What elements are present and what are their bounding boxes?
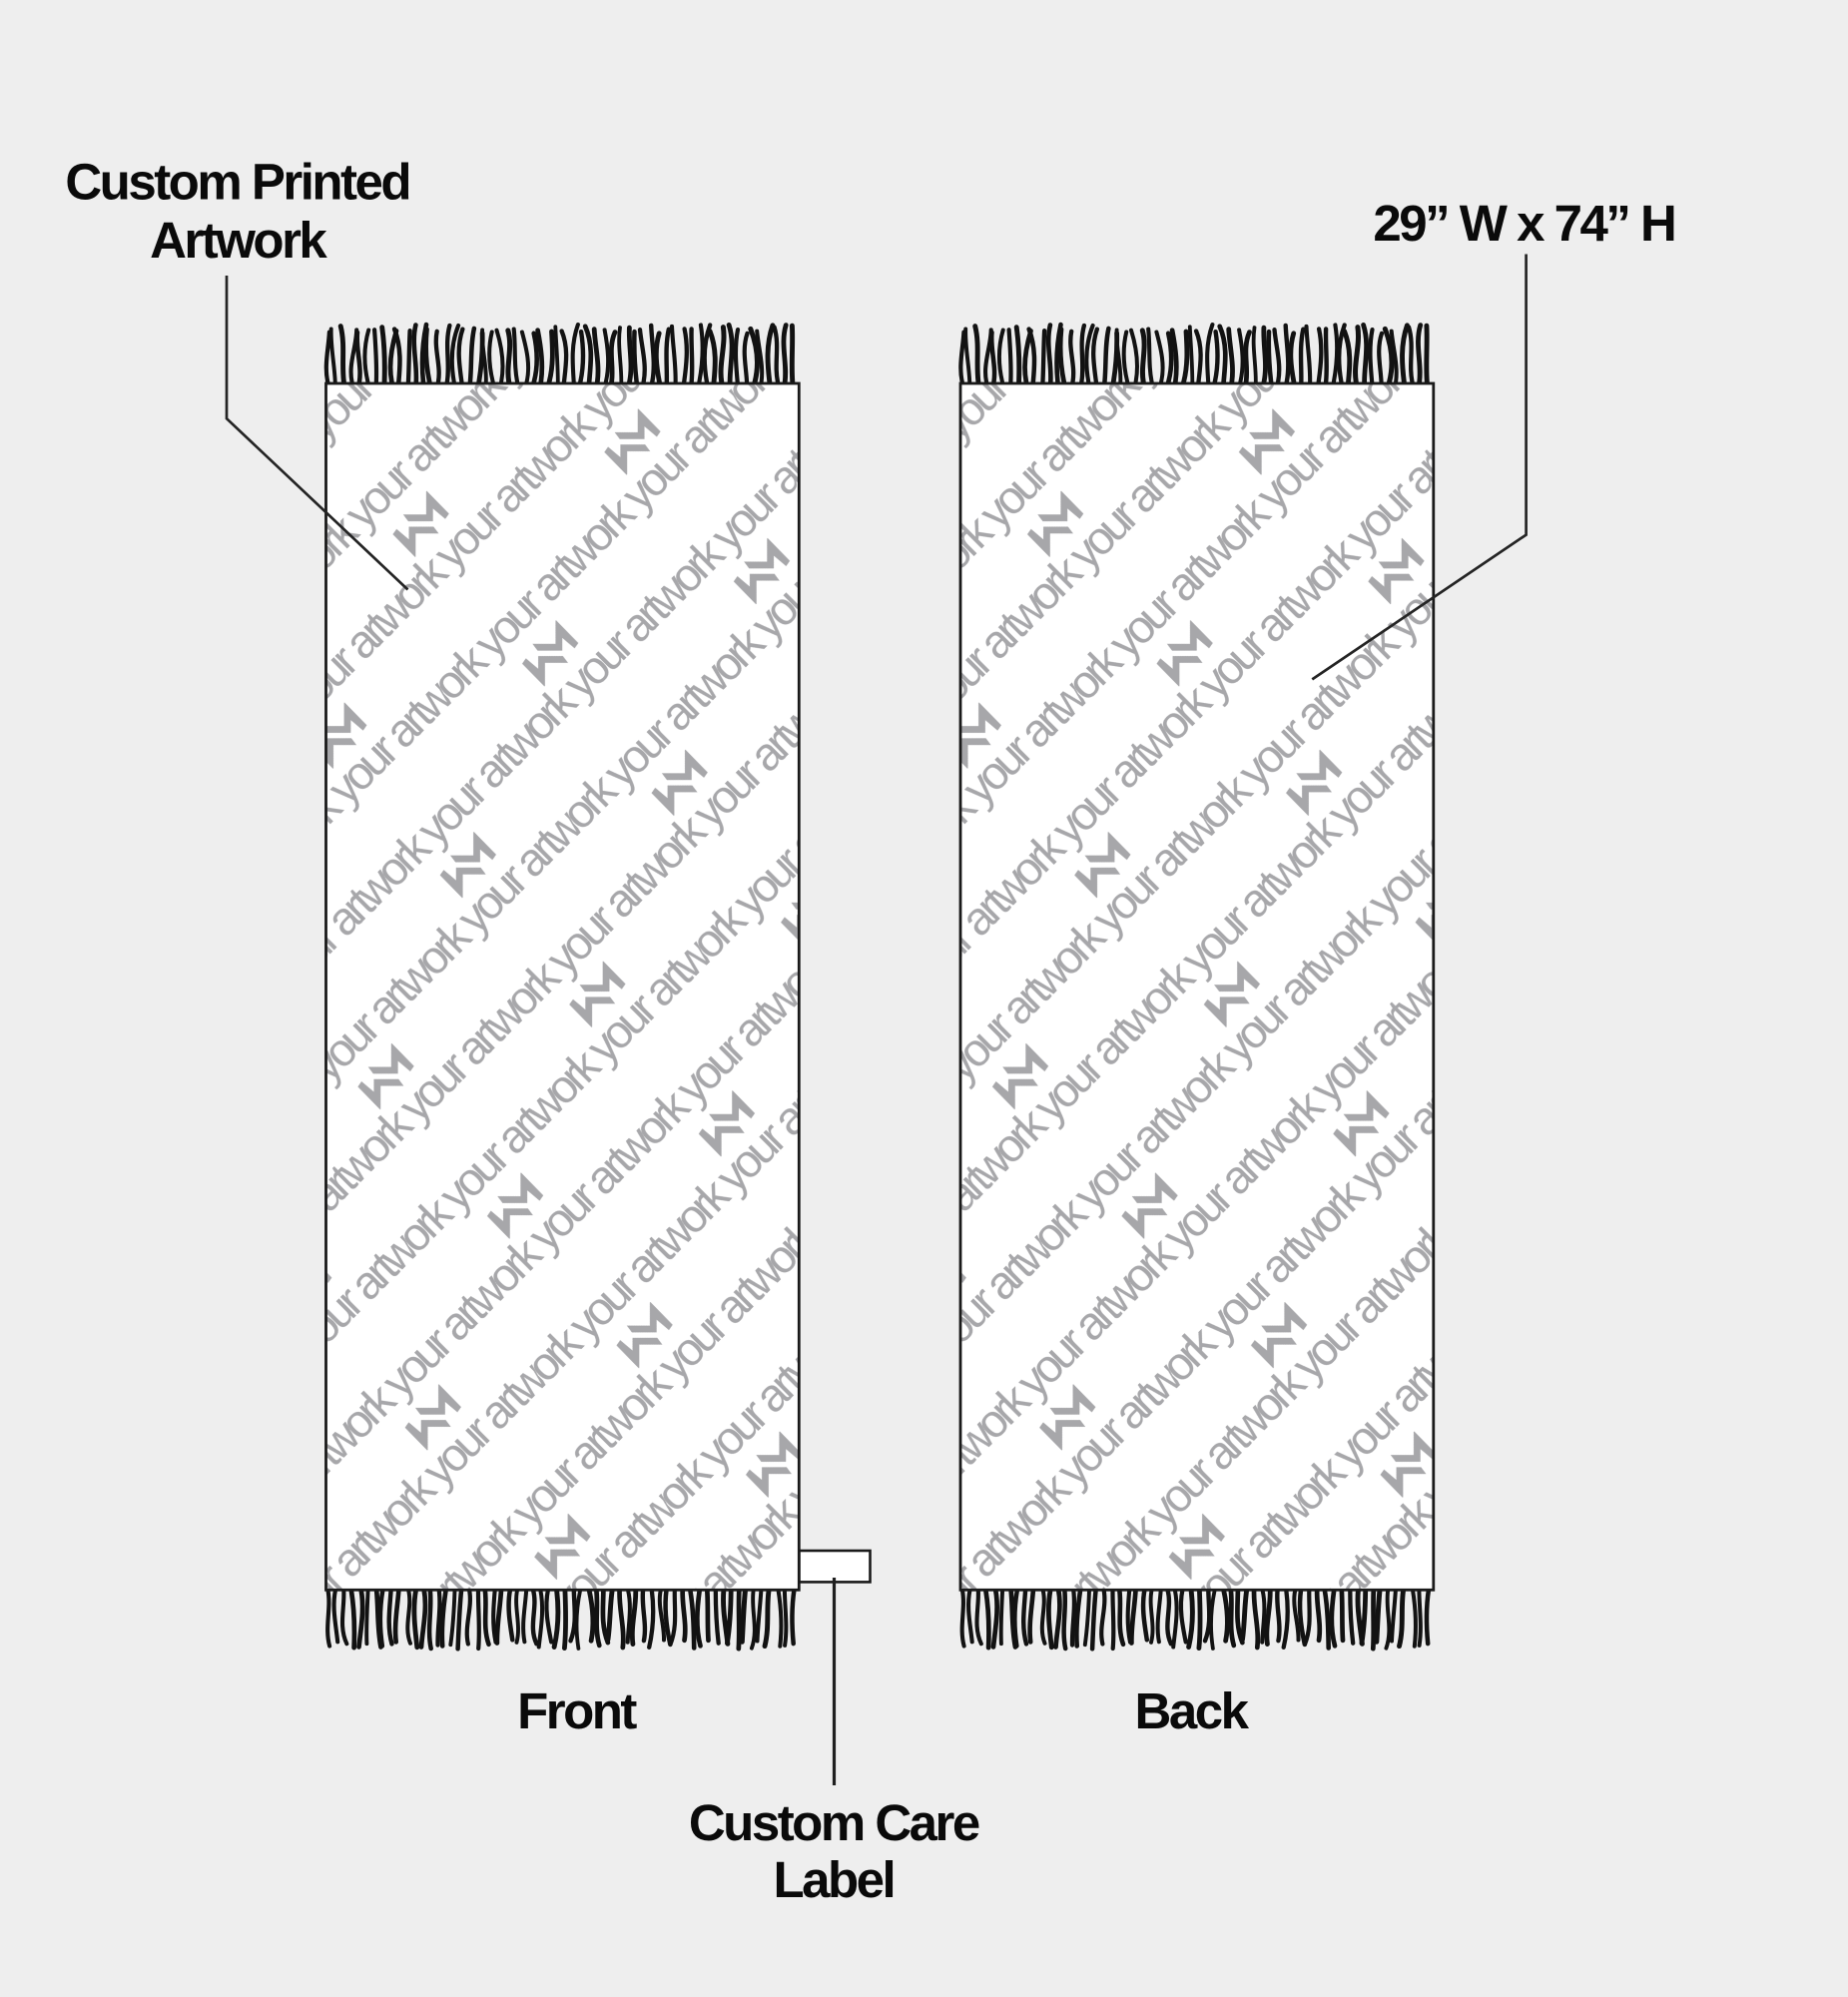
- svg-text:Back: Back: [1135, 1682, 1250, 1739]
- svg-text:Custom Printed: Custom Printed: [65, 154, 409, 211]
- svg-text:Front: Front: [517, 1682, 637, 1739]
- svg-text:Artwork: Artwork: [150, 212, 327, 269]
- svg-text:Label: Label: [773, 1851, 894, 1908]
- svg-text:29” W x 74” H: 29” W x 74” H: [1373, 195, 1674, 252]
- svg-text:Custom Care: Custom Care: [689, 1794, 979, 1851]
